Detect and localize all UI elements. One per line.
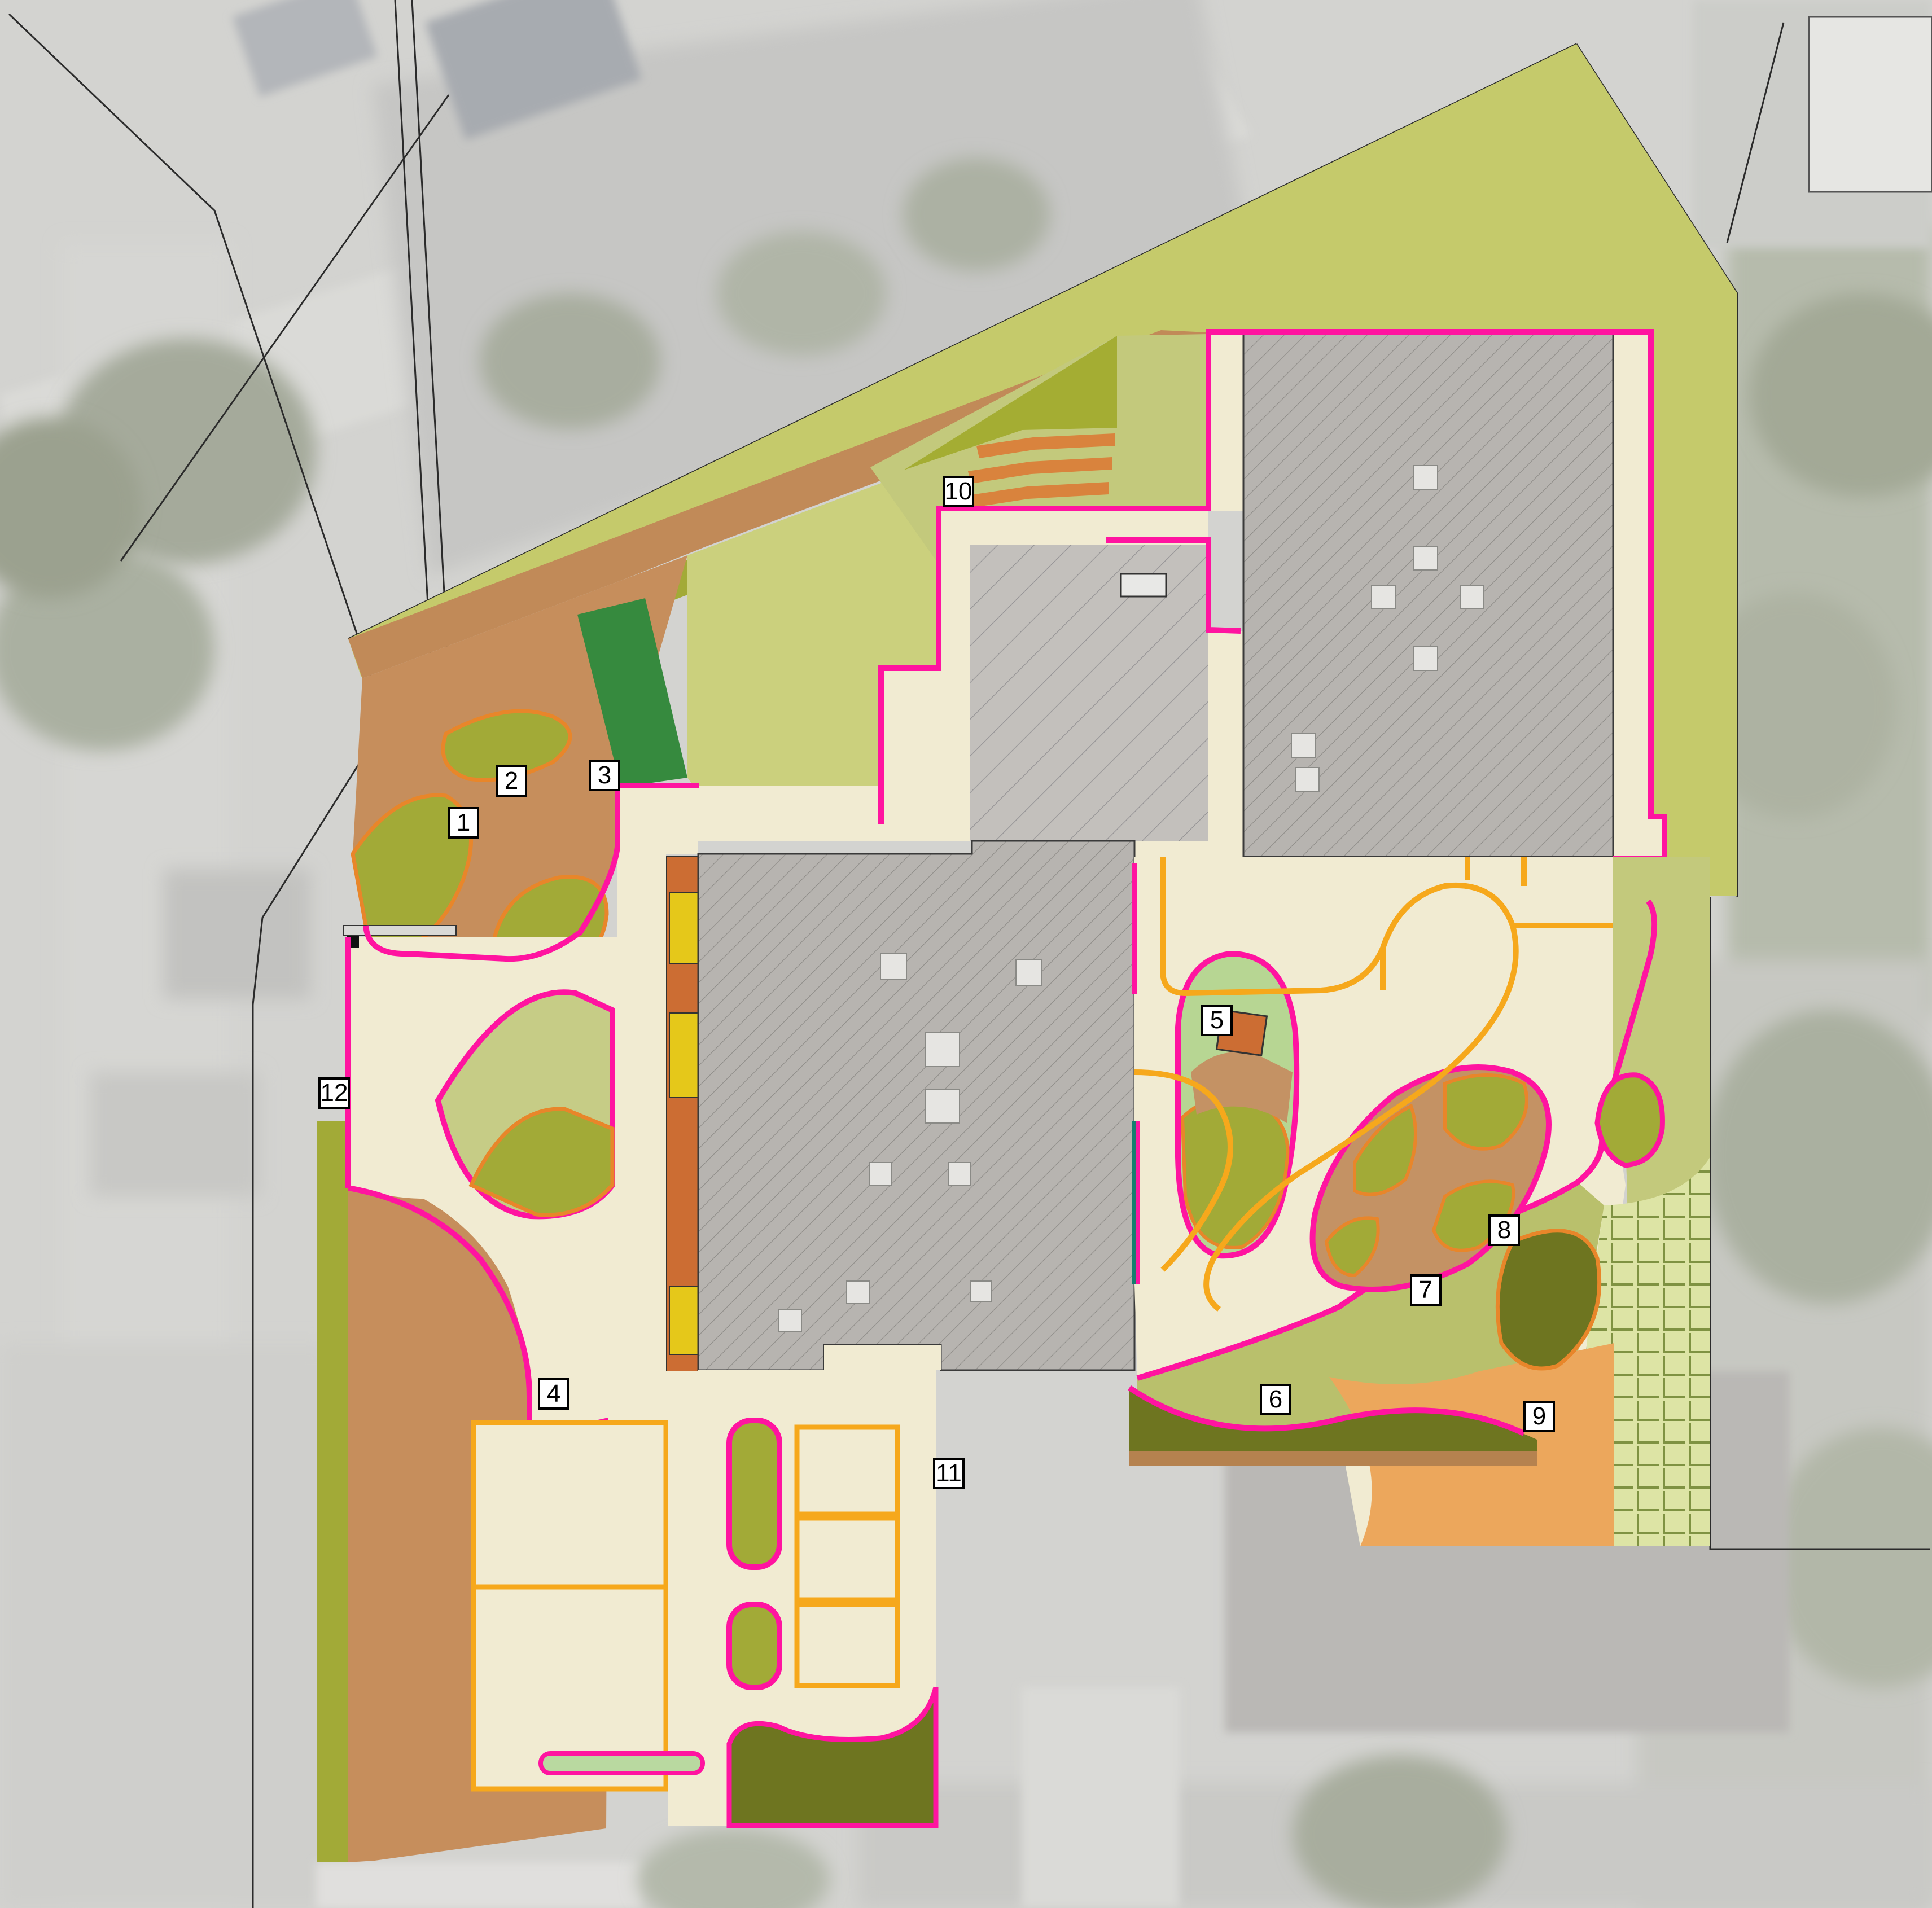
svg-text:1: 1 <box>457 809 470 836</box>
svg-text:11: 11 <box>936 1459 962 1487</box>
svg-text:12: 12 <box>321 1079 348 1107</box>
svg-text:9: 9 <box>1532 1402 1546 1430</box>
svg-text:4: 4 <box>547 1380 560 1407</box>
svg-text:6: 6 <box>1269 1385 1282 1413</box>
svg-text:8: 8 <box>1497 1216 1511 1244</box>
svg-text:2: 2 <box>505 767 518 795</box>
svg-text:10: 10 <box>945 477 972 505</box>
svg-text:7: 7 <box>1419 1276 1432 1304</box>
svg-text:5: 5 <box>1210 1006 1224 1034</box>
svg-text:3: 3 <box>598 761 611 789</box>
